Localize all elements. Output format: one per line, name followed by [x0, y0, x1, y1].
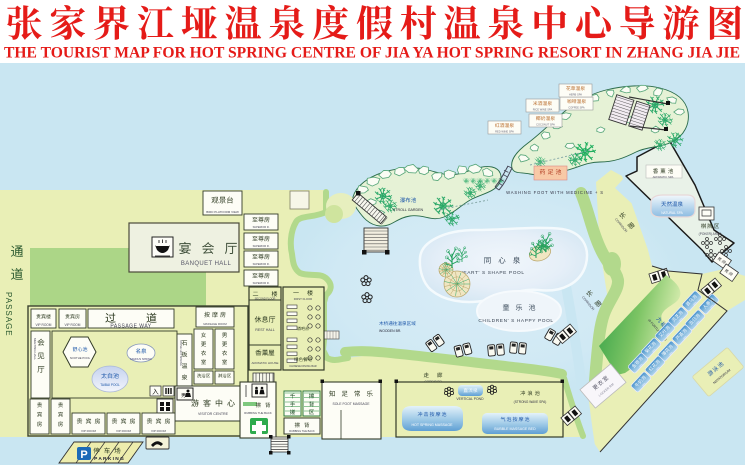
svg-text:AROMATIC SPA: AROMATIC SPA	[653, 175, 674, 179]
svg-text:AROMATIC HOUSE: AROMATIC HOUSE	[251, 361, 278, 365]
svg-text:TAIBAI POOL: TAIBAI POOL	[100, 383, 120, 387]
svg-text:RUBBING THE BACK: RUBBING THE BACK	[289, 429, 315, 433]
svg-text:PASSAGE WAY: PASSAGE WAY	[110, 324, 151, 330]
svg-text:STONE HOT SPRING: STONE HOT SPRING	[179, 340, 183, 366]
svg-text:CHINESE DINING BAR: CHINESE DINING BAR	[289, 364, 317, 368]
svg-text:VIP ROOM: VIP ROOM	[151, 429, 166, 433]
svg-text:BUBBLE MASSAGE BED: BUBBLE MASSAGE BED	[494, 427, 536, 431]
svg-text:HOT SPRING MASSAGE: HOT SPRING MASSAGE	[411, 423, 453, 427]
svg-text:MASSAGE ROOM: MASSAGE ROOM	[203, 322, 227, 326]
svg-text:P: P	[80, 449, 87, 461]
svg-text:WASHING FOOT WITH MEDICINE + S: WASHING FOOT WITH MEDICINE + S	[506, 190, 604, 195]
svg-text:WOODEN BR.: WOODEN BR.	[379, 329, 401, 333]
svg-text:COCONUT SPA: COCONUT SPA	[536, 123, 555, 127]
svg-text:VIP ROOM: VIP ROOM	[116, 429, 131, 433]
svg-text:STROLL GARDEN: STROLL GARDEN	[393, 208, 424, 212]
svg-text:VIP ROOM: VIP ROOM	[65, 323, 81, 327]
svg-text:FIRST FLOOR: FIRST FLOOR	[294, 297, 312, 301]
svg-text:VIP ROOM: VIP ROOM	[36, 323, 52, 327]
svg-text:VERTICAL POND: VERTICAL POND	[456, 397, 484, 401]
svg-text:NATURAL SPA: NATURAL SPA	[661, 211, 683, 215]
svg-text:BIRD PLATFORM VIEW: BIRD PLATFORM VIEW	[206, 210, 239, 214]
svg-text:THE TOURIST MAP FOR HOT SPRING: THE TOURIST MAP FOR HOT SPRING CENTRE OF…	[4, 45, 740, 62]
svg-text:SUPERIOR R.: SUPERIOR R.	[253, 262, 270, 266]
svg-text:SOOTHE POOL: SOOTHE POOL	[70, 356, 91, 360]
svg-text:SUPERIOR R.: SUPERIOR R.	[253, 244, 270, 248]
svg-text:SECOND FLOOR: SECOND FLOOR	[255, 297, 276, 301]
svg-text:HEART' S SHAPE POOL: HEART' S SHAPE POOL	[459, 270, 524, 276]
svg-text:PASSAGE: PASSAGE	[4, 292, 13, 337]
svg-text:MEETING HALL: MEETING HALL	[33, 338, 37, 360]
svg-text:VIP ROOM: VIP ROOM	[81, 429, 96, 433]
svg-text:P A R K I N G: P A R K I N G	[94, 456, 124, 462]
svg-text:(STRONG WAVE SPA): (STRONG WAVE SPA)	[514, 400, 547, 404]
svg-text:SUPERIOR R.: SUPERIOR R.	[253, 281, 270, 285]
svg-text:HERB SPA: HERB SPA	[569, 93, 582, 97]
svg-text:FAMOUS SPRING: FAMOUS SPRING	[130, 357, 152, 361]
svg-text:BANQUET HALL: BANQUET HALL	[181, 261, 232, 267]
svg-text:SUPERIOR R.: SUPERIOR R.	[253, 225, 270, 229]
svg-text:REST HALL: REST HALL	[255, 328, 275, 332]
svg-text:RUBBING THE BACK: RUBBING THE BACK	[244, 411, 272, 415]
svg-text:VISITOR CENTRE: VISITOR CENTRE	[198, 412, 229, 416]
svg-text:SOLE FOOT MASSAGE: SOLE FOOT MASSAGE	[332, 402, 370, 406]
svg-text:COFFEE SPA: COFFEE SPA	[568, 106, 585, 110]
svg-text:CHILDREN' S HAPPY POOL: CHILDREN' S HAPPY POOL	[478, 318, 553, 324]
svg-text:RICE WINE SPA: RICE WINE SPA	[533, 108, 553, 112]
svg-text:RED WINE SPA: RED WINE SPA	[495, 130, 514, 134]
